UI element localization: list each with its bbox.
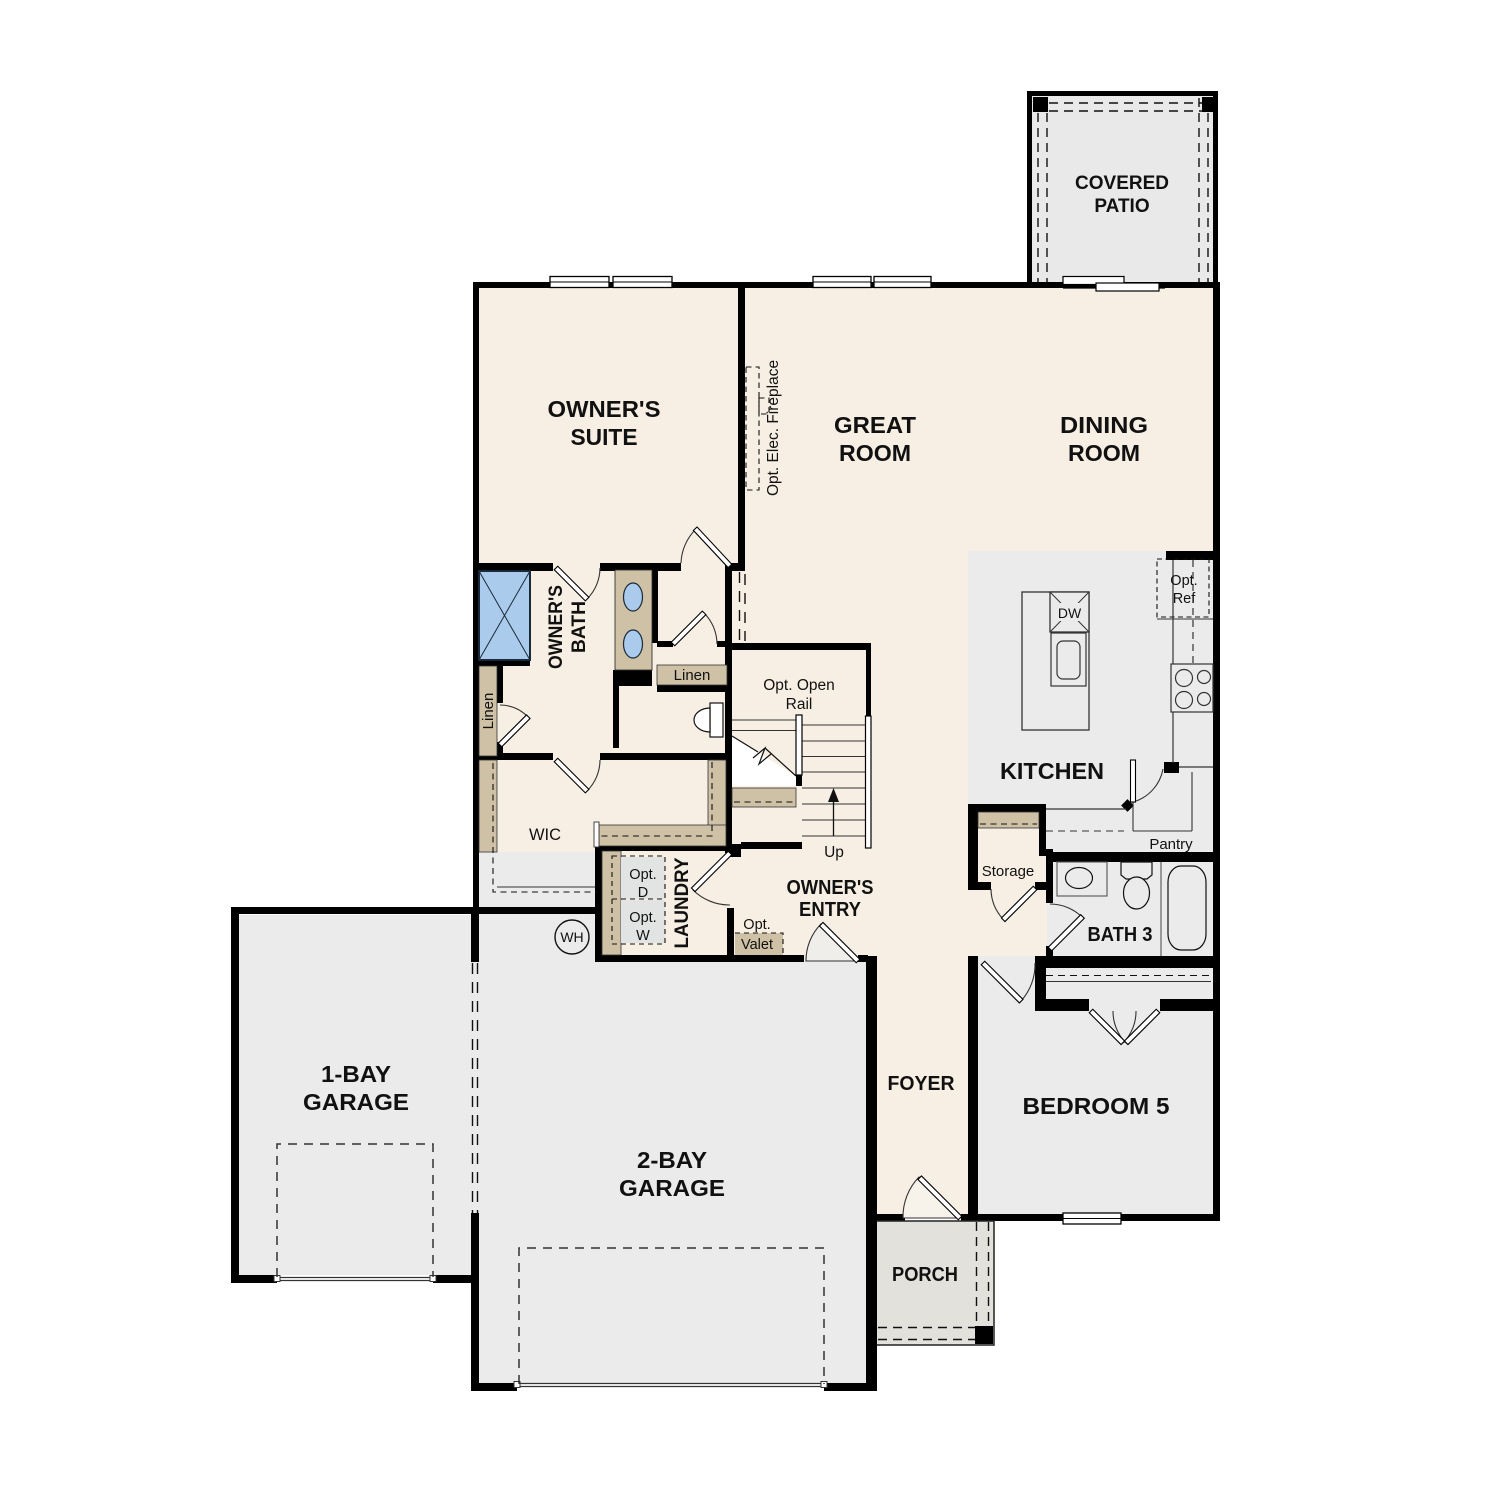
svg-text:GREAT: GREAT xyxy=(834,412,917,438)
svg-text:Storage: Storage xyxy=(982,863,1035,880)
svg-text:Valet: Valet xyxy=(741,937,773,953)
svg-text:Linen: Linen xyxy=(480,693,497,730)
svg-text:ENTRY: ENTRY xyxy=(799,899,862,921)
svg-text:Opt.: Opt. xyxy=(629,910,656,926)
svg-text:Ref: Ref xyxy=(1173,591,1197,607)
svg-text:W: W xyxy=(636,928,650,944)
svg-text:D: D xyxy=(638,885,648,901)
svg-text:Opt.: Opt. xyxy=(629,867,656,883)
svg-text:WH: WH xyxy=(560,929,583,945)
svg-text:LAUNDRY: LAUNDRY xyxy=(671,858,693,949)
svg-text:DW: DW xyxy=(1058,605,1082,621)
svg-text:Opt.: Opt. xyxy=(743,917,770,933)
svg-text:Up: Up xyxy=(824,844,844,861)
svg-text:Linen: Linen xyxy=(674,667,711,684)
svg-text:Pantry: Pantry xyxy=(1149,836,1193,853)
svg-text:BATH: BATH xyxy=(569,601,590,653)
svg-text:BATH 3: BATH 3 xyxy=(1088,924,1153,946)
svg-text:OWNER'S: OWNER'S xyxy=(787,877,874,899)
svg-text:Opt.: Opt. xyxy=(1170,573,1197,589)
svg-text:COVERED: COVERED xyxy=(1075,173,1169,194)
svg-text:DINING: DINING xyxy=(1060,412,1148,438)
svg-text:PORCH: PORCH xyxy=(892,1264,958,1286)
svg-text:1-BAY: 1-BAY xyxy=(321,1061,391,1087)
svg-text:OWNER'S: OWNER'S xyxy=(548,396,661,422)
svg-text:PATIO: PATIO xyxy=(1094,196,1149,217)
svg-text:Opt. Elec. Fireplace: Opt. Elec. Fireplace xyxy=(765,360,782,496)
svg-text:Rail: Rail xyxy=(786,696,813,713)
svg-text:ROOM: ROOM xyxy=(1068,440,1140,466)
svg-text:FOYER: FOYER xyxy=(888,1073,956,1095)
svg-text:Opt. Open: Opt. Open xyxy=(763,677,835,694)
svg-text:BEDROOM 5: BEDROOM 5 xyxy=(1023,1093,1170,1119)
svg-text:ROOM: ROOM xyxy=(839,440,911,466)
svg-text:OWNER'S: OWNER'S xyxy=(546,585,567,669)
svg-text:2-BAY: 2-BAY xyxy=(637,1147,707,1173)
svg-text:GARAGE: GARAGE xyxy=(303,1089,409,1115)
svg-text:KITCHEN: KITCHEN xyxy=(1000,758,1104,784)
svg-text:SUITE: SUITE xyxy=(571,424,638,450)
svg-text:GARAGE: GARAGE xyxy=(619,1175,725,1201)
svg-text:WIC: WIC xyxy=(529,826,561,844)
